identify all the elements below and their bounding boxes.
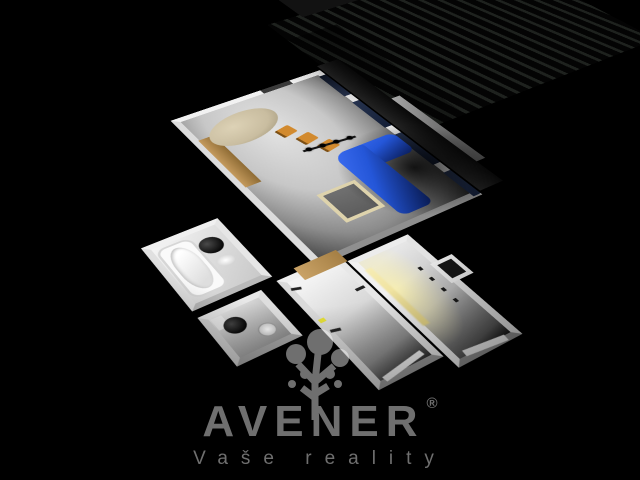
dining-chair-2 (295, 132, 319, 146)
door-frame-mark (291, 287, 302, 291)
door-frame-mark (330, 328, 342, 333)
sink-white (214, 253, 238, 268)
door-frame-mark (355, 285, 366, 291)
render-canvas: AVENER® Vaše reality (0, 0, 640, 480)
toilet (219, 314, 251, 337)
watermark-brand-text: AVENER (202, 397, 424, 446)
dining-chair-1 (274, 125, 298, 138)
yellow-switch (318, 317, 327, 323)
door-opening (260, 81, 293, 94)
hall-door-leaf (382, 350, 424, 381)
registered-mark: ® (427, 395, 438, 412)
watermark-tagline-text: Vaše reality (0, 448, 640, 470)
apartment-floorplan (46, 63, 563, 404)
front-door-leaf (462, 335, 509, 357)
spot-light-icon (304, 147, 313, 152)
small-washbasin (254, 320, 281, 339)
